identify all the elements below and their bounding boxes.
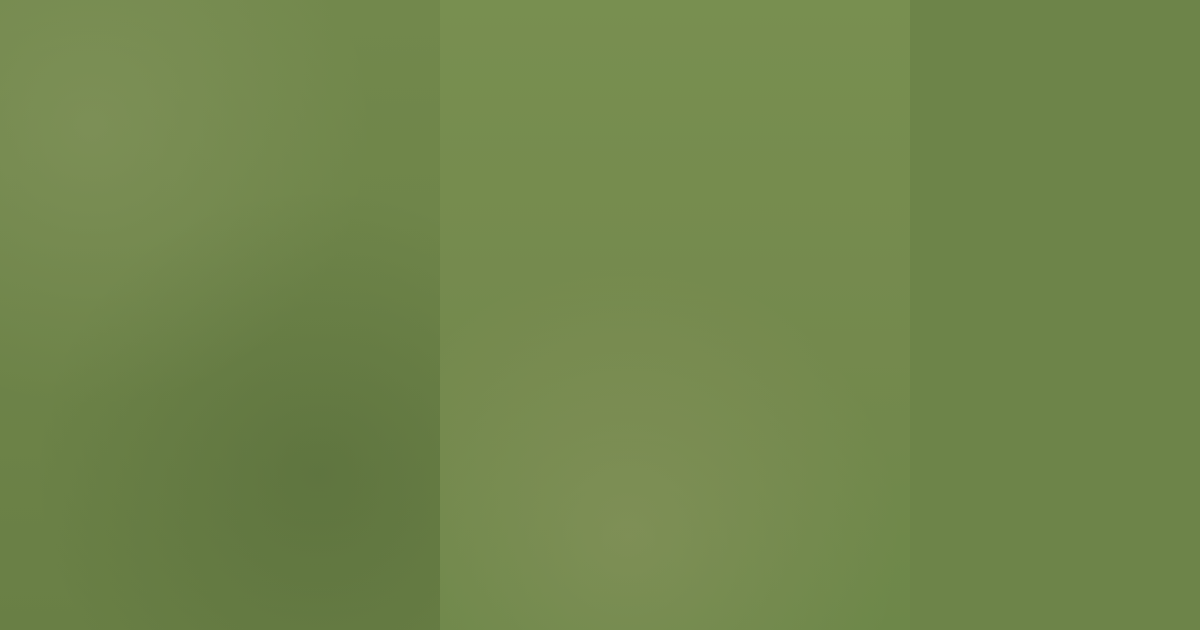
satellite-map[interactable]: N 800 E N 800 E N 800 E 2023 Google © 20 (0, 0, 1200, 630)
church-grounds (440, 0, 910, 630)
residential-area (0, 0, 455, 630)
parking-lane-line (0, 138, 302, 140)
open-field (893, 0, 1200, 630)
